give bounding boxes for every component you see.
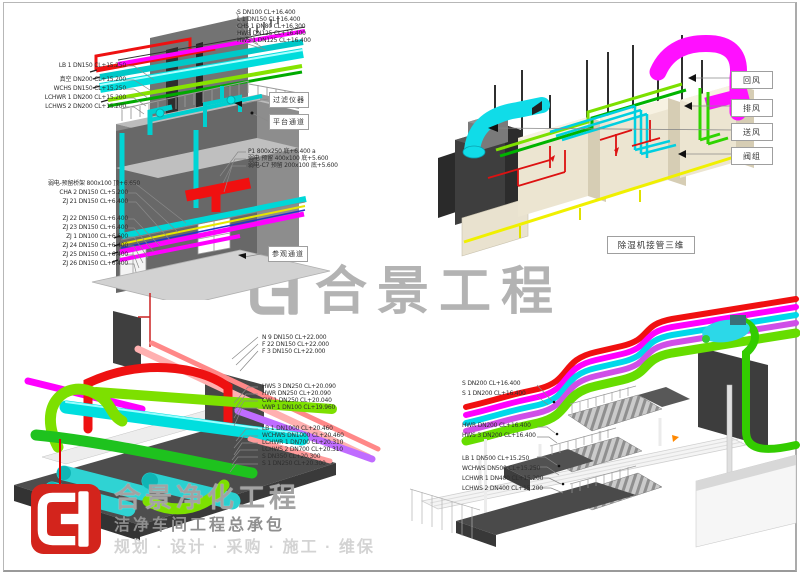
pipe-label: P1 800x250 底+6.400 a bbox=[248, 148, 338, 155]
q1-label-stack-top-left-a: LB 1 DN150 CL+15.250 bbox=[40, 62, 126, 69]
q3-label-stack-b: HWS 3 DN250 CL+20.090 HWR DN250 CL+20.09… bbox=[262, 383, 336, 411]
drawing-sheet: 合景工程 bbox=[0, 0, 800, 577]
annotation-box-exhaust-air: 排风 bbox=[731, 99, 773, 117]
pipe-label: ZJ 21 DN150 CL+6.400 bbox=[48, 197, 128, 206]
pipe-label: S DN100 CL+16.400 bbox=[237, 9, 311, 16]
pipe-label: ZJ 23 DN150 CL+6.400 bbox=[48, 223, 128, 232]
pipe-label: S 1 DN250 CL+20.300 bbox=[262, 460, 344, 467]
annotation-text: 平台通道 bbox=[273, 117, 305, 127]
pipe-label: N 9 DN150 CL+22.000 bbox=[262, 334, 329, 341]
pipe-label: VWP 1 DN100 CL+19.960 bbox=[262, 404, 336, 411]
pipe-label: LCHWR 1 DN400 CL+15.200 bbox=[462, 474, 543, 484]
pipe-label: F 22 DN150 CL+22.000 bbox=[262, 341, 329, 348]
pipe-label: 真空 DN200 CL+15.200 bbox=[40, 75, 126, 84]
annotation-box-valve-group: 阀组 bbox=[731, 147, 773, 165]
pipe-label: 弱电-预留桥架 800x100 顶+6.650 bbox=[48, 179, 128, 188]
annotation-box-caption-dehumidifier: 除湿机接管三维 bbox=[607, 236, 695, 254]
annotation-text: 过滤仪器 bbox=[273, 95, 305, 105]
pipe-label: HWS 3 DN200 CL+16.400 bbox=[462, 431, 536, 441]
q1-label-stack-top-left-b: 真空 DN200 CL+15.200 WCHS DN150 CL+15.250 … bbox=[40, 75, 126, 111]
pipe-label: 弱电 预留 400x100 底+5.600 bbox=[248, 155, 338, 162]
pipe-label: ZJ 24 DN150 CL+6.400 bbox=[48, 241, 128, 250]
pipe-label: S DN350 CL+20.300 bbox=[262, 453, 344, 460]
q1-label-stack-bottom-left-b: ZJ 22 DN150 CL+6.400 ZJ 23 DN150 CL+6.40… bbox=[48, 214, 128, 241]
company-name: 合景净化工程 bbox=[114, 483, 375, 514]
pipe-label: HWR DN125 CL+16.400 bbox=[237, 30, 311, 37]
pipe-label: HWS 1 DN125 CL+16.400 bbox=[237, 37, 311, 44]
company-branding: 合景净化工程 洁净车间工程总承包 规划 · 设计 · 采购 · 施工 · 维保 bbox=[30, 483, 375, 559]
annotation-box-return-air: 回风 bbox=[731, 71, 773, 89]
annotation-box-platform: 平台通道 bbox=[269, 114, 309, 130]
pipe-label: LCHWR 1 DN200 CL+15.200 bbox=[40, 93, 126, 102]
pipe-label: CHS 1 DN80 CL+16.300 bbox=[237, 23, 311, 30]
q1-label-stack-top-right: S DN100 CL+16.400 L 1 DN150 CL+16.400 CH… bbox=[237, 9, 311, 44]
annotation-box-visit: 参观通道 bbox=[268, 246, 308, 262]
pipe-label: WCHWS DN1000 CL+20.460 bbox=[262, 432, 344, 439]
pipe-label: HWR DN250 CL+20.090 bbox=[262, 390, 336, 397]
pipe-label: LB 1 DN500 CL+15.250 bbox=[462, 454, 543, 464]
pipe-label: CW 1 DN250 CL+20.040 bbox=[262, 397, 336, 404]
pipe-label: WCHWS DN500 CL+15.250 bbox=[462, 464, 543, 474]
q3-label-stack-a: N 9 DN150 CL+22.000 F 22 DN150 CL+22.000… bbox=[262, 334, 329, 355]
pipe-label: S 1 DN200 CL+16.400 bbox=[462, 389, 526, 399]
q4-label-stack-c: LB 1 DN500 CL+15.250 WCHWS DN500 CL+15.2… bbox=[462, 454, 543, 494]
q4-label-stack-b: HWR DN200 CL+16.400 HWS 3 DN200 CL+16.40… bbox=[462, 421, 536, 441]
pipe-label: HWS 3 DN250 CL+20.090 bbox=[262, 383, 336, 390]
pipe-label: LB 1 DN150 CL+15.250 bbox=[40, 62, 126, 69]
q1-label-stack-bottom-left-a: 弱电-预留桥架 800x100 顶+6.650 CHA 2 DN150 CL+5… bbox=[48, 179, 128, 206]
pipe-label: HWR DN200 CL+16.400 bbox=[462, 421, 536, 431]
q3-label-stack-c: LB 1 DN1000 CL+20.460 WCHWS DN1000 CL+20… bbox=[262, 425, 344, 467]
pipe-label: WCHS DN150 CL+15.250 bbox=[40, 84, 126, 93]
annotation-text: 排风 bbox=[743, 103, 761, 114]
pipe-label: 弱电-C7 预留 200x100 底+5.600 bbox=[248, 162, 338, 169]
pipe-label: ZJ 25 DN150 CL+6.400 bbox=[48, 250, 128, 259]
company-tagline: 洁净车间工程总承包 bbox=[114, 515, 375, 537]
annotation-text: 阀组 bbox=[743, 151, 761, 162]
dehumidifier-unit-isometric-view bbox=[400, 0, 800, 290]
q1-label-stack-mid-right: P1 800x250 底+6.400 a 弱电 预留 400x100 底+5.6… bbox=[248, 148, 338, 169]
annotation-box-supply-air: 送风 bbox=[731, 123, 773, 141]
stairwell-piping-isometric-view bbox=[400, 289, 800, 577]
company-services: 规划 · 设计 · 采购 · 施工 · 维保 bbox=[114, 537, 375, 559]
pipe-label: LB 1 DN1000 CL+20.460 bbox=[262, 425, 344, 432]
pipe-label: LCHWS 2 DN200 CL+15.200 bbox=[40, 102, 126, 111]
pipe-label: LCHWS 2 DN700 CL+20.310 bbox=[262, 446, 344, 453]
pipe-label: LCHWS 2 DN400 CL+15.200 bbox=[462, 484, 543, 494]
annotation-text: 送风 bbox=[743, 127, 761, 138]
pipe-label: S DN200 CL+16.400 bbox=[462, 379, 526, 389]
annotation-text: 回风 bbox=[743, 75, 761, 86]
annotation-box-filter: 过滤仪器 bbox=[269, 92, 309, 108]
pipe-label: L 1 DN150 CL+16.400 bbox=[237, 16, 311, 23]
company-logo-icon bbox=[30, 483, 102, 555]
pipe-label: F 3 DN150 CL+22.000 bbox=[262, 348, 329, 355]
annotation-text: 除湿机接管三维 bbox=[618, 239, 685, 251]
q1-label-stack-bottom-left-c: ZJ 24 DN150 CL+6.400 ZJ 25 DN150 CL+6.40… bbox=[48, 241, 128, 268]
annotation-text: 参观通道 bbox=[272, 249, 304, 259]
pipe-label: LCHWR 1 DN700 CL+20.310 bbox=[262, 439, 344, 446]
pipe-label: ZJ 26 DN150 CL+6.400 bbox=[48, 259, 128, 268]
pipe-label: ZJ 1 DN100 CL+6.600 bbox=[48, 232, 128, 241]
pipe-label: CHA 2 DN150 CL+5.200 bbox=[48, 188, 128, 197]
pipe-label: ZJ 22 DN150 CL+6.400 bbox=[48, 214, 128, 223]
q4-label-stack-a: S DN200 CL+16.400 S 1 DN200 CL+16.400 bbox=[462, 379, 526, 399]
